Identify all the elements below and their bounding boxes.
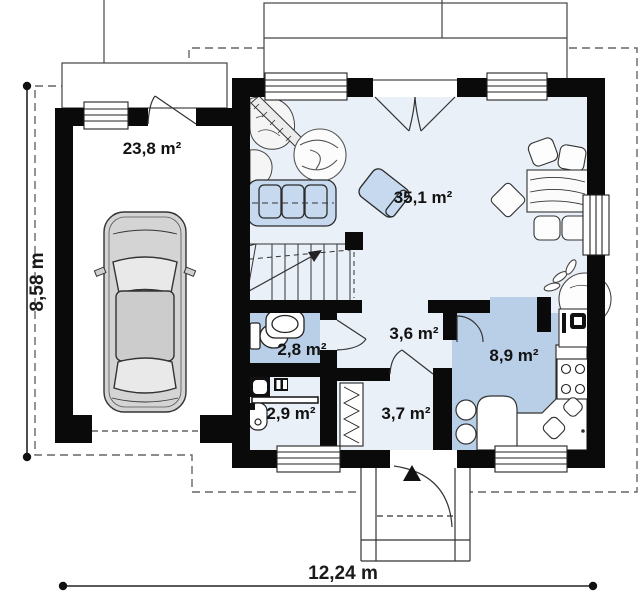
wardrobe bbox=[340, 383, 363, 446]
bathroom-sink bbox=[266, 311, 304, 338]
living-area-label: 35,1 m² bbox=[394, 188, 453, 208]
round-rug bbox=[294, 129, 346, 181]
floor-plan: 23,8 m² 35,1 m² 2,8 m² 3,6 m² 8,9 m² 2,9… bbox=[0, 0, 640, 605]
column bbox=[345, 232, 363, 250]
living-window-left bbox=[265, 73, 347, 100]
bathroom-area-label: 2,8 m² bbox=[277, 340, 326, 360]
utility-window bbox=[277, 446, 340, 472]
garage-canopy bbox=[62, 63, 227, 108]
car bbox=[94, 212, 195, 412]
fridge bbox=[559, 309, 588, 347]
stove bbox=[557, 359, 588, 399]
hall-area-label: 3,6 m² bbox=[389, 324, 438, 344]
floor-plan-drawing bbox=[0, 0, 640, 605]
kitchen-window bbox=[495, 446, 567, 472]
kitchen-area-label: 8,9 m² bbox=[489, 346, 538, 366]
sofa bbox=[248, 180, 336, 226]
porch-steps bbox=[361, 468, 470, 562]
utility-area-label: 2,9 m² bbox=[266, 404, 315, 424]
boiler bbox=[248, 403, 267, 430]
depth-dimension-label: 8,58 m bbox=[27, 252, 49, 311]
living-window-right bbox=[487, 73, 547, 100]
entry-area-label: 3,7 m² bbox=[381, 404, 430, 424]
width-dimension-label: 12,24 m bbox=[308, 563, 378, 585]
garage-area-label: 23,8 m² bbox=[123, 139, 182, 159]
side-window bbox=[583, 195, 609, 255]
garage-window bbox=[84, 102, 128, 129]
kitchen-table bbox=[477, 396, 517, 450]
